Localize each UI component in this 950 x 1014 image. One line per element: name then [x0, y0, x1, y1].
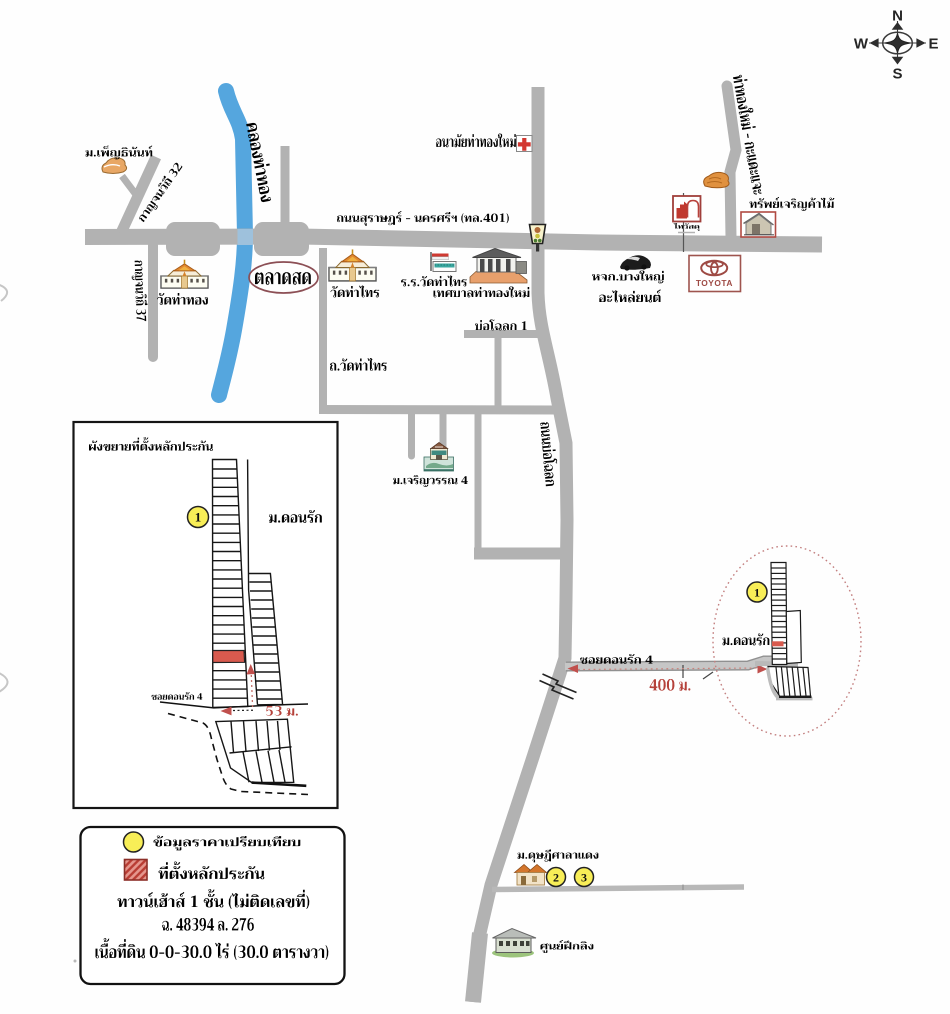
svg-text:W: W [854, 36, 869, 53]
svg-text:1: 1 [754, 585, 760, 599]
svg-text:1: 1 [195, 510, 202, 525]
svg-text:N: N [892, 8, 903, 25]
svg-text:3: 3 [581, 870, 587, 884]
svg-text:2: 2 [553, 870, 559, 884]
svg-text:E: E [928, 36, 938, 53]
svg-text:S: S [892, 66, 902, 83]
svg-text:TOYOTA: TOYOTA [696, 278, 733, 288]
